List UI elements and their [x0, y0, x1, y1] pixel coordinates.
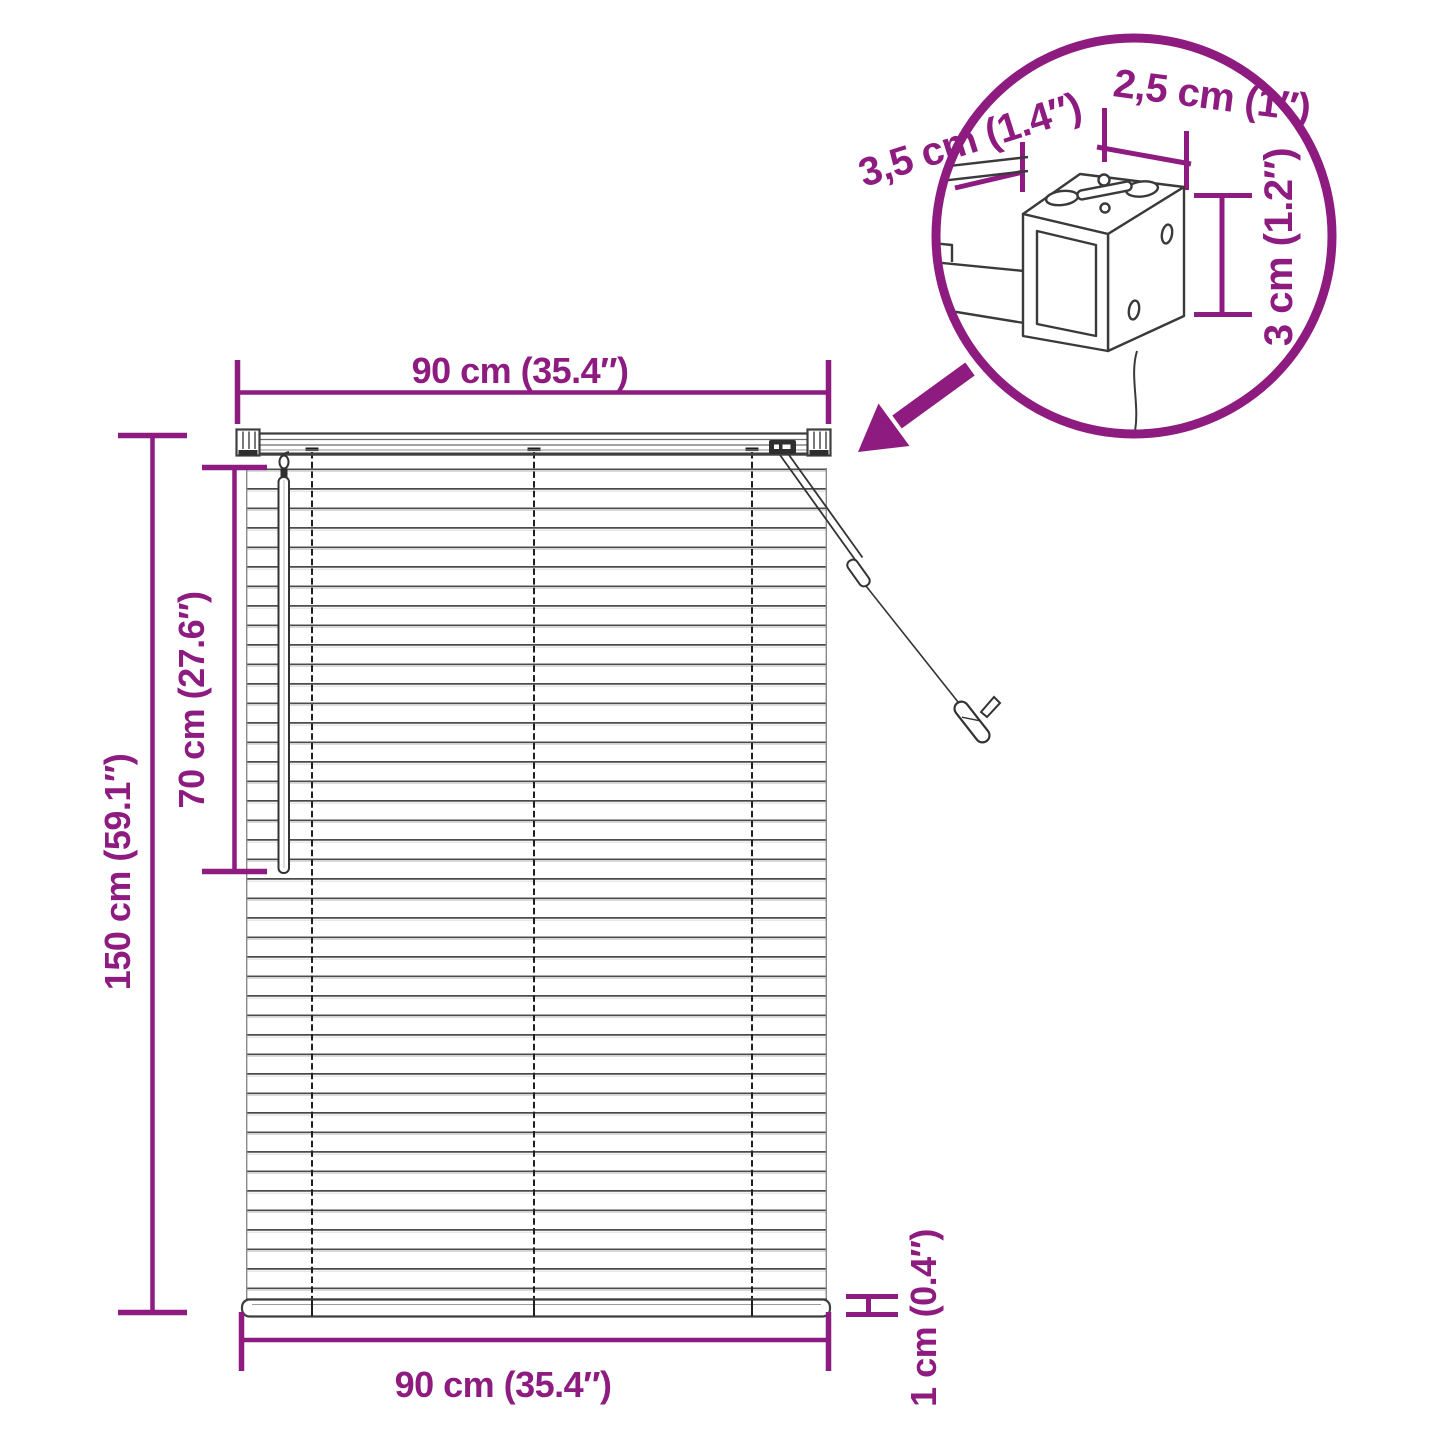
bracket-drawing: [932, 157, 1184, 436]
blind-illustration: [0, 0, 1445, 1445]
bottom-rail: [242, 1300, 830, 1317]
headrail: [237, 430, 831, 456]
dim-label-bottom-rail: 1 cm (0.4″): [906, 1229, 942, 1407]
slats: [246, 468, 827, 1300]
tilt-wand: [279, 452, 290, 873]
dim-label-wand-length: 70 cm (27.6″): [174, 592, 210, 809]
blind-dimension-diagram: 90 cm (35.4″) 150 cm (59.1″) 70 cm (27.6…: [0, 0, 1445, 1445]
dim-label-headrail-height: 3 cm (1.2″): [1259, 148, 1299, 346]
headrail-bracket-right: [808, 430, 831, 456]
headrail-bracket-left: [237, 430, 260, 456]
dim-label-top-width: 90 cm (35.4″): [412, 353, 629, 389]
cord-tassel: [952, 697, 1000, 745]
cord-lock: [769, 440, 796, 454]
zoom-detail-arrow-icon: [858, 369, 970, 452]
dim-label-bottom-width: 90 cm (35.4″): [395, 1367, 612, 1403]
dim-label-overall-height: 150 cm (59.1″): [100, 754, 136, 990]
ladder-cord-anchors: [306, 448, 759, 452]
cord-bead: [845, 558, 871, 589]
